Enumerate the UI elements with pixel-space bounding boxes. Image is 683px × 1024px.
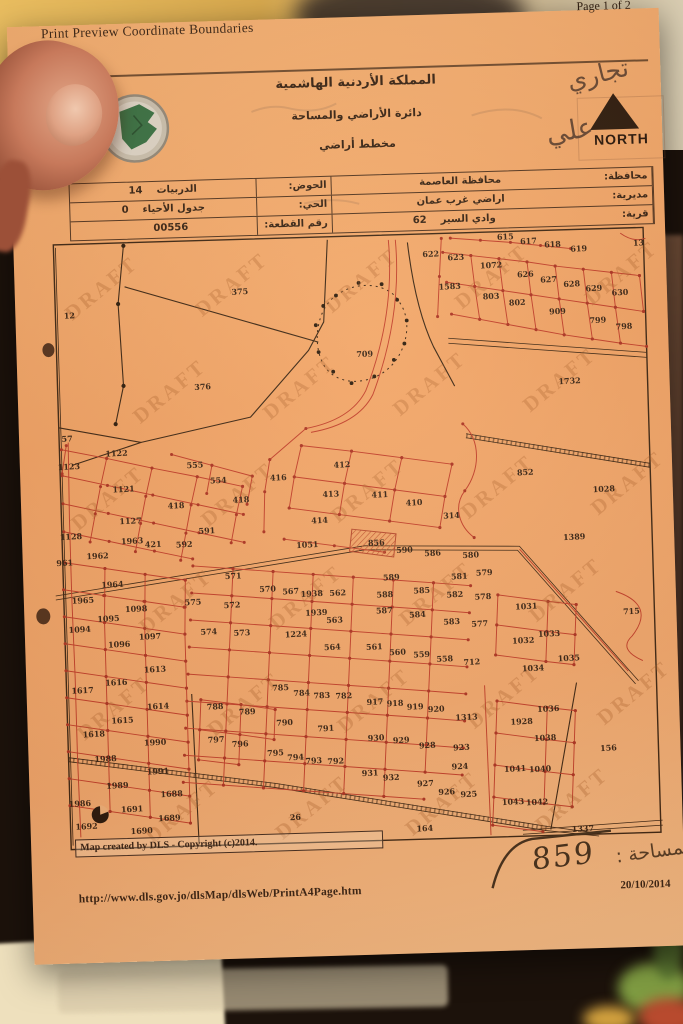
parcel-number: 926 (438, 786, 455, 797)
parcel-number: 1040 (529, 763, 552, 774)
parcel-info-table: الدربيات14 الحوض: محافظة العاصمة محافظة:… (68, 166, 654, 241)
parcel-number: 583 (443, 616, 460, 627)
draft-watermark: DRAFT (326, 453, 409, 528)
parcel-number: 572 (223, 599, 240, 610)
parcel-number: 1224 (285, 628, 308, 639)
parcel-number: 1041 (504, 763, 527, 774)
draft-watermark: DRAFT (60, 251, 143, 326)
parcel-number: 1028 (592, 483, 615, 494)
draft-watermark: DRAFT (400, 766, 483, 841)
parcel-number: 1389 (563, 531, 586, 542)
parcel-number: 554 (210, 475, 227, 486)
parcel-number: 622 (422, 248, 439, 259)
parcel-number: 411 (371, 489, 388, 500)
parcel-number: 1965 (71, 595, 94, 606)
parcel-number: 562 (329, 587, 346, 598)
parcel-number: 591 (198, 525, 215, 536)
parcel-number: 1939 (305, 607, 328, 618)
parcel-number: 1615 (111, 715, 134, 726)
parcel-number: 785 (272, 682, 289, 693)
hole-punch-top (42, 343, 54, 357)
parcel-number: 560 (389, 646, 406, 657)
parcel-number: 920 (428, 703, 445, 714)
parcel-number: 618 (544, 239, 561, 250)
parcel-number: 923 (453, 742, 470, 753)
parcel-number: 961 (56, 557, 73, 568)
draft-watermark: DRAFT (134, 564, 217, 639)
parcel-number: 626 (517, 269, 534, 280)
parcel-number: 1988 (94, 753, 117, 764)
parcel-number: 559 (413, 649, 430, 660)
parcel-number: 1096 (108, 639, 131, 650)
parcel-number: 917 (366, 696, 383, 707)
parcel-number: 1033 (538, 628, 561, 639)
parcel-number: 1097 (139, 631, 162, 642)
parcel-number: 1691 (121, 803, 144, 814)
page-indicator: Page 1 of 2 (576, 0, 631, 14)
parcel-number: 1583 (438, 281, 461, 292)
footer-url: http://www.dls.gov.jo/dlsMap/dlsWeb/Prin… (79, 885, 362, 905)
parcel-number: 1095 (97, 613, 120, 624)
parcel-number: 1732 (558, 375, 581, 386)
parcel-number: 799 (589, 314, 606, 325)
parcel-number: 1689 (158, 812, 181, 823)
parcel-number: 1123 (58, 461, 81, 472)
handwriting-top: تجاري (564, 53, 631, 96)
parcel-number: 1990 (144, 737, 167, 748)
parcel-number: 1962 (86, 550, 109, 561)
parcel-number: 1122 (105, 448, 128, 459)
draft-watermark: DRAFT (202, 667, 285, 742)
parcel-number: 1690 (130, 825, 153, 836)
parcel-number: 588 (376, 589, 393, 600)
parcel-number: 579 (476, 567, 493, 578)
draft-watermark: DRAFT (592, 655, 675, 730)
map-credit: Map created by DLS - Copyright (c)2014. (75, 830, 383, 857)
parcel-number: 919 (407, 701, 424, 712)
parcel-number: 796 (232, 738, 249, 749)
page-title: Print Preview Coordinate Boundaries (41, 20, 254, 42)
parcel-number: 1989 (106, 780, 129, 791)
parcel-number: 57 (61, 433, 73, 444)
parcel-number: 630 (611, 287, 628, 298)
parcel-number: 1313 (455, 711, 478, 722)
parcel-number: 13 (633, 237, 645, 248)
parcel-number: 931 (362, 767, 379, 778)
parcel-number: 1938 (300, 588, 323, 599)
parcel-number: 783 (313, 690, 330, 701)
draft-watermark: DRAFT (264, 560, 347, 635)
parcel-number: 584 (409, 609, 426, 620)
parcel-number: 617 (520, 235, 537, 246)
parcel-number: 627 (540, 274, 557, 285)
parcel-number: 793 (305, 755, 322, 766)
parcel-number: 1986 (69, 798, 92, 809)
parcel-number: 918 (386, 698, 403, 709)
draft-watermark: DRAFT (450, 239, 533, 314)
parcel-number: 1051 (296, 539, 319, 550)
parcel-number: 791 (317, 723, 334, 734)
parcel-number: 587 (376, 605, 393, 616)
parcel-number: 592 (176, 539, 193, 550)
draft-watermark: DRAFT (258, 350, 341, 425)
draft-watermark: DRAFT (190, 247, 273, 322)
draft-watermark: DRAFT (394, 556, 477, 631)
parcel-number: 792 (327, 755, 344, 766)
parcel-number: 909 (549, 306, 566, 317)
parcel-number: 615 (497, 231, 514, 242)
parcel-number: 1038 (534, 732, 557, 743)
cell-village-label: قرية: (575, 205, 653, 225)
parcel-number: 1688 (160, 788, 183, 799)
parcel-number: 573 (233, 627, 250, 638)
cell-directorate-label: مديرية: (575, 186, 653, 206)
parcel-number: 1128 (60, 531, 83, 542)
parcel-number: 577 (471, 618, 488, 629)
letterhead-department: دائرة الأراضي والمساحة (231, 104, 481, 124)
draft-watermark: DRAFT (388, 346, 471, 421)
parcel-number: 564 (324, 641, 341, 652)
parcel-number: 314 (443, 510, 460, 521)
parcel-number: 790 (276, 717, 293, 728)
parcel-number: 930 (367, 732, 384, 743)
parcel-number: 1035 (557, 652, 580, 663)
draft-watermark: DRAFT (196, 457, 279, 532)
cell-quarter-label: الحي: (257, 196, 333, 216)
draft-watermark: DRAFT (586, 445, 669, 520)
parcel-number: 803 (482, 291, 499, 302)
parcel-number: 623 (447, 252, 464, 263)
parcel-number: 410 (406, 497, 423, 508)
draft-watermark: DRAFT (332, 663, 415, 738)
parcel-number: 575 (184, 597, 201, 608)
parcel-number: 416 (270, 472, 287, 483)
parcel-number: 929 (393, 734, 410, 745)
parcel-number: 1042 (526, 796, 549, 807)
parcel-number: 578 (474, 591, 491, 602)
north-label: NORTH (580, 130, 662, 148)
parcel-number: 1098 (125, 603, 148, 614)
draft-watermark: DRAFT (580, 236, 663, 311)
parcel-number: 164 (416, 823, 433, 834)
parcel-number: 570 (259, 583, 276, 594)
parcel-number: 586 (424, 547, 441, 558)
parcel-number: 1337 (571, 823, 594, 834)
parcel-number: 619 (570, 243, 587, 254)
parcel-number: 1618 (82, 728, 105, 739)
parcel-number: 1963 (121, 535, 144, 546)
parcel-number: 1034 (522, 662, 545, 673)
parcel-number: 1964 (101, 579, 124, 590)
draft-watermark: DRAFT (456, 449, 539, 524)
parcel-number: 852 (517, 467, 534, 478)
parcel-number: 555 (186, 459, 203, 470)
parcel-number: 561 (366, 641, 383, 652)
parcel-number: 1121 (112, 483, 135, 494)
parcel-number: 1991 (147, 765, 170, 776)
parcel-number: 412 (333, 459, 350, 470)
parcel-number: 1613 (144, 664, 167, 675)
parcel-number: 709 (356, 348, 373, 359)
letterhead-doc-type: مخطط أراضي (232, 134, 482, 154)
parcel-number: 715 (623, 606, 640, 617)
parcel-number: 585 (413, 585, 430, 596)
parcel-number: 932 (383, 772, 400, 783)
parcel-number: 1031 (515, 600, 538, 611)
photo-canvas: DRAFTDRAFTDRAFTDRAFTDRAFTDRAFTDRAFTDRAFT… (0, 0, 683, 1024)
parcel-number: 563 (326, 614, 343, 625)
draft-watermark: DRAFT (128, 354, 211, 429)
footer-date: 20/10/2014 (564, 878, 670, 893)
parcel-number: 571 (225, 570, 242, 581)
parcel-number: 375 (231, 286, 248, 297)
parcel-number: 414 (311, 515, 328, 526)
compass-icon (91, 805, 109, 823)
parcel-number: 582 (446, 589, 463, 600)
parcel-number: 421 (145, 539, 162, 550)
draft-watermark: DRAFT (72, 671, 155, 746)
parcel-number: 856 (368, 537, 385, 548)
parcel-number: 925 (460, 788, 477, 799)
parcel-number: 376 (194, 381, 211, 392)
draft-watermark: DRAFT (320, 243, 403, 318)
draft-watermark: DRAFT (66, 461, 149, 536)
parcel-number: 788 (206, 701, 223, 712)
parcel-number: 1043 (502, 796, 525, 807)
cell-governorate-label: محافظة: (574, 167, 652, 187)
parcel-number: 629 (585, 282, 602, 293)
parcel-number: 802 (509, 297, 526, 308)
parcel-number: 418 (167, 500, 184, 511)
handwritten-area-label: المساحة : (614, 835, 683, 867)
parcel-number: 928 (419, 740, 436, 751)
parcel-number: 1072 (480, 259, 503, 270)
parcel-number: 590 (396, 544, 413, 555)
parcel-number: 418 (232, 494, 249, 505)
parcel-number: 798 (615, 321, 632, 332)
parcel-number: 794 (287, 752, 304, 763)
parcel-number: 581 (451, 571, 468, 582)
parcel-number: 26 (290, 812, 302, 823)
parcel-number: 413 (322, 488, 339, 499)
parcel-number: 784 (293, 687, 310, 698)
parcel-number: 1617 (71, 685, 94, 696)
parcel-number: 1614 (147, 700, 170, 711)
parcel-number: 558 (436, 653, 453, 664)
cell-basin-label: الحوض: (256, 177, 332, 197)
parcel-number: 1036 (537, 703, 560, 714)
parcel-number: 1127 (119, 515, 142, 526)
letterhead-kingdom: المملكة الأردنية الهاشمية (230, 71, 480, 93)
parcel-number: 927 (417, 778, 434, 789)
hole-punch-bottom (36, 608, 50, 624)
draft-watermark: DRAFT (518, 342, 601, 417)
parcel-number: 1692 (75, 821, 98, 832)
parcel-number: 924 (451, 761, 468, 772)
parcel-number: 1032 (512, 635, 535, 646)
parcel-number: 797 (207, 734, 224, 745)
parcel-number: 12 (64, 310, 76, 321)
draft-watermark: DRAFT (462, 659, 545, 734)
parcel-number: 789 (239, 706, 256, 717)
parcel-number: 580 (462, 549, 479, 560)
draft-watermark: DRAFT (530, 762, 613, 837)
parcel-number: 589 (383, 572, 400, 583)
parcel-number: 782 (335, 690, 352, 701)
parcel-number: 1094 (68, 624, 91, 635)
parcel-number: 795 (267, 747, 284, 758)
parcel-number: 712 (463, 656, 480, 667)
parcel-number: 567 (282, 586, 299, 597)
paper-sheet: DRAFTDRAFTDRAFTDRAFTDRAFTDRAFTDRAFTDRAFT… (7, 8, 683, 965)
draft-watermark: DRAFT (524, 552, 607, 627)
handwritten-area-value: 859 (532, 835, 595, 878)
parcel-number: 1928 (510, 716, 533, 727)
parcel-number: 1616 (105, 677, 128, 688)
parcel-number: 628 (563, 278, 580, 289)
parcel-number: 156 (600, 742, 617, 753)
parcel-number: 574 (200, 626, 217, 637)
cell-parcel-number-label: رقم القطعة: (258, 215, 334, 235)
